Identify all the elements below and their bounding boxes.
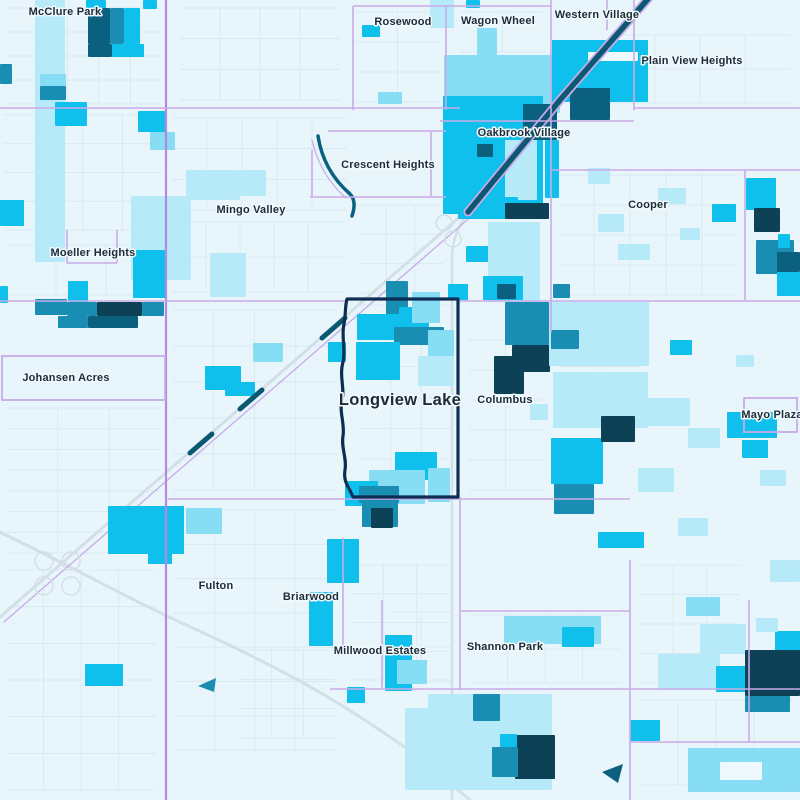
map-label-briarwood[interactable]: Briarwood <box>283 591 339 603</box>
parcel <box>545 140 559 198</box>
parcel <box>68 281 88 302</box>
parcel <box>85 664 123 686</box>
parcel <box>736 355 754 367</box>
parcel <box>40 86 66 100</box>
map-label-columbus[interactable]: Columbus <box>477 394 532 406</box>
parcel <box>186 170 240 200</box>
parcel <box>638 468 674 492</box>
parcel <box>58 316 88 328</box>
parcel <box>405 708 429 790</box>
parcel <box>551 330 579 349</box>
parcel <box>477 144 493 157</box>
parcel <box>670 340 692 355</box>
parcel <box>553 284 570 298</box>
parcel <box>754 208 780 232</box>
parcel <box>133 250 167 298</box>
parcel <box>686 597 720 616</box>
parcel <box>497 284 516 299</box>
map-label-shannon-park[interactable]: Shannon Park <box>467 641 544 653</box>
parcel <box>746 178 776 210</box>
parcel <box>378 92 402 104</box>
map-label-cooper[interactable]: Cooper <box>628 199 668 211</box>
parcel <box>658 654 720 690</box>
parcel <box>712 204 736 222</box>
parcel <box>494 356 524 394</box>
parcel <box>505 302 549 345</box>
parcel <box>477 28 497 55</box>
parcel <box>186 508 222 534</box>
parcel <box>356 342 400 380</box>
map-label-oakbrook-village[interactable]: Oakbrook Village <box>478 127 571 139</box>
parcel <box>500 734 517 747</box>
parcel <box>466 246 488 262</box>
map-label-mcclure-park[interactable]: McClure Park <box>29 6 102 18</box>
map-label-longview-lake[interactable]: Longview Lake <box>339 391 461 409</box>
parcel <box>745 696 790 712</box>
parcel <box>598 532 644 548</box>
parcel <box>55 102 87 126</box>
map-label-millwood-estates[interactable]: Millwood Estates <box>334 645 426 657</box>
parcel <box>428 330 454 356</box>
parcel <box>530 404 548 420</box>
parcel <box>756 618 778 632</box>
parcel <box>138 111 166 132</box>
parcel <box>112 44 144 57</box>
parcel <box>430 0 454 28</box>
parcel <box>760 470 786 486</box>
parcel <box>210 253 246 297</box>
map-viewport: McClure ParkRosewoodWagon WheelWestern V… <box>0 0 800 800</box>
parcel <box>397 660 427 684</box>
parcel <box>601 416 635 442</box>
parcel <box>688 428 720 448</box>
map-label-western-village[interactable]: Western Village <box>555 9 640 21</box>
parcel <box>88 316 138 328</box>
map-canvas[interactable]: McClure ParkRosewoodWagon WheelWestern V… <box>0 0 800 800</box>
parcel <box>240 170 266 196</box>
parcel <box>97 302 142 316</box>
parcel <box>473 694 500 721</box>
parcel <box>742 440 768 458</box>
map-label-plain-view-heights[interactable]: Plain View Heights <box>641 55 742 67</box>
parcel <box>148 541 172 564</box>
parcel <box>648 398 690 426</box>
map-label-rosewood[interactable]: Rosewood <box>374 16 431 28</box>
parcel <box>680 228 700 240</box>
map-label-johansen-acres[interactable]: Johansen Acres <box>22 372 109 384</box>
parcel <box>110 8 124 44</box>
parcel <box>253 343 283 362</box>
parcel <box>630 720 660 741</box>
parcel <box>0 200 24 226</box>
parcel <box>108 506 184 554</box>
parcel <box>142 302 164 316</box>
parcel <box>551 438 603 484</box>
parcel <box>618 244 650 260</box>
parcel <box>598 214 624 232</box>
parcel <box>150 132 175 150</box>
map-label-fulton[interactable]: Fulton <box>199 580 234 592</box>
parcel <box>700 624 746 654</box>
parcel <box>515 735 555 779</box>
parcel <box>720 762 762 780</box>
parcel <box>412 292 440 323</box>
parcel <box>778 234 790 248</box>
map-label-wagon-wheel[interactable]: Wagon Wheel <box>461 15 535 27</box>
parcel <box>466 0 480 8</box>
parcel <box>418 356 454 386</box>
parcel <box>143 0 157 9</box>
parcel <box>371 508 393 528</box>
parcel <box>562 627 594 647</box>
parcel <box>35 0 65 262</box>
parcel <box>67 302 97 316</box>
parcel <box>777 252 800 272</box>
parcel <box>88 44 112 57</box>
parcel <box>678 518 708 536</box>
parcel <box>40 74 66 86</box>
parcel <box>225 382 255 396</box>
parcel <box>770 560 800 582</box>
parcel <box>492 747 518 777</box>
parcel <box>124 8 140 44</box>
parcel <box>570 88 610 120</box>
map-label-mayo-plaza[interactable]: Mayo Plaza <box>741 409 800 421</box>
parcel <box>777 272 800 296</box>
parcel <box>505 203 549 219</box>
map-label-moeller-heights[interactable]: Moeller Heights <box>51 247 136 259</box>
map-label-crescent-heights[interactable]: Crescent Heights <box>341 159 435 171</box>
parcel <box>0 64 12 84</box>
map-label-mingo-valley[interactable]: Mingo Valley <box>216 204 286 216</box>
